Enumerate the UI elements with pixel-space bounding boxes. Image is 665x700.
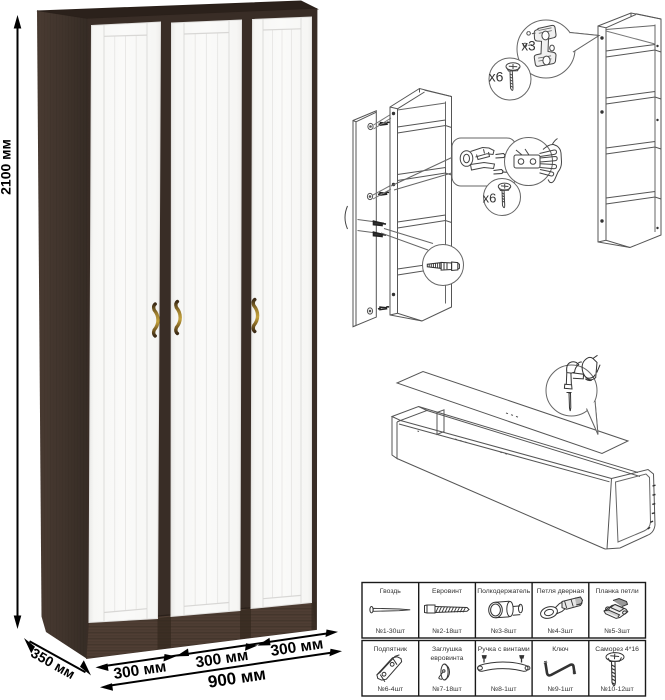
svg-text:№3-8шт: №3-8шт [491,628,517,635]
svg-text:Ключ: Ключ [552,646,569,653]
svg-text:евровинта: евровинта [431,655,464,662]
svg-text:300 мм: 300 мм [269,635,324,660]
svg-text:Полкодержатель: Полкодержатель [477,588,530,595]
svg-text:№10-12шт: №10-12шт [600,686,633,693]
svg-text:№9-1шт: №9-1шт [548,686,574,693]
svg-text:350 мм: 350 мм [28,645,78,683]
svg-text:№5-3шт: №5-3шт [604,628,630,635]
svg-text:x6: x6 [489,69,504,85]
svg-text:№8-1шт: №8-1шт [491,686,517,693]
svg-text:№6-4шт: №6-4шт [377,686,403,693]
svg-text:Ручка с винтами: Ручка с винтами [478,646,530,653]
svg-text:Петля дверная: Петля дверная [537,588,585,595]
svg-text:x6: x6 [483,190,497,205]
svg-text:Саморез 4*16: Саморез 4*16 [595,646,639,653]
svg-text:№2-18шт: №2-18шт [432,628,461,635]
svg-text:№4-3шт: №4-3шт [548,628,574,635]
svg-text:Планка петли: Планка петли [596,588,639,595]
svg-text:№7-18шт: №7-18шт [432,686,461,693]
svg-text:Гвоздь: Гвоздь [380,588,401,595]
svg-text:Подпятник: Подпятник [374,646,408,653]
svg-text:x3: x3 [521,39,535,54]
svg-text:2100 мм: 2100 мм [0,139,14,195]
svg-text:Заглушка: Заглушка [432,646,462,653]
svg-text:Евровинт: Евровинт [432,588,462,595]
svg-text:№1-30шт: №1-30шт [376,628,405,635]
